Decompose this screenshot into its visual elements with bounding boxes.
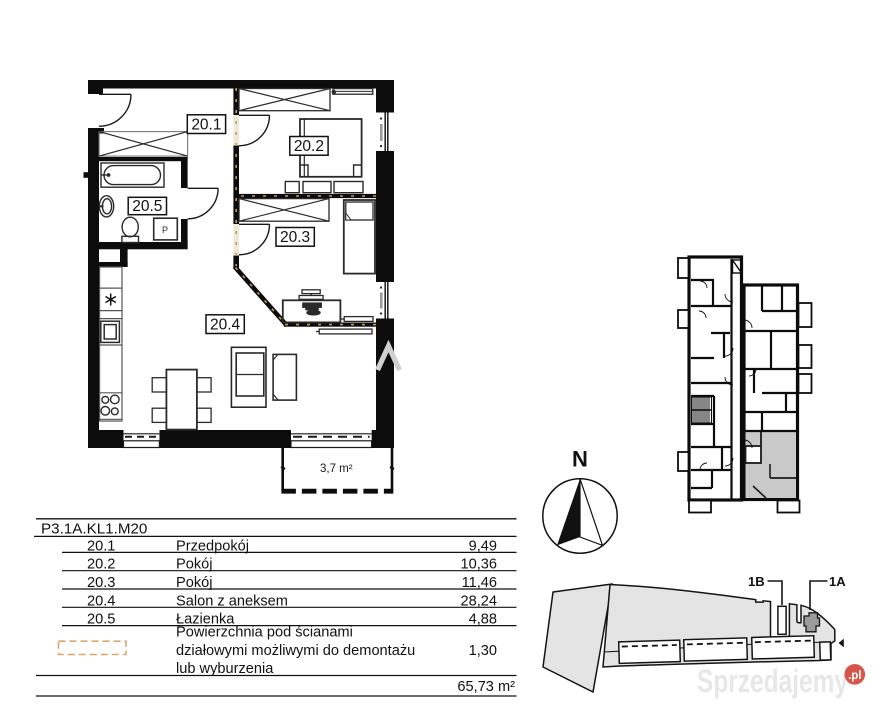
svg-text:1,30: 1,30 (469, 643, 497, 659)
svg-text:20.2: 20.2 (294, 138, 324, 155)
svg-text:działowymi możliwymi do demont: działowymi możliwymi do demontażu (176, 643, 415, 659)
svg-text:20.4: 20.4 (210, 316, 241, 333)
svg-text:Sprzedajemy: Sprzedajemy (697, 663, 848, 699)
svg-text:P: P (162, 225, 168, 235)
svg-text:1B: 1B (748, 574, 765, 589)
svg-text:65,73 m²: 65,73 m² (457, 679, 515, 695)
svg-text:.pl: .pl (848, 670, 861, 682)
svg-text:lub wyburzenia: lub wyburzenia (176, 661, 274, 677)
svg-text:P3.1A.KL1.M20: P3.1A.KL1.M20 (41, 520, 147, 537)
svg-text:1A: 1A (829, 574, 846, 589)
svg-text:20.3: 20.3 (280, 229, 310, 246)
svg-text:Powierzchnia pod ścianami: Powierzchnia pod ścianami (176, 625, 353, 641)
svg-text:20.1: 20.1 (191, 116, 221, 133)
svg-text:20.5: 20.5 (132, 198, 162, 215)
svg-text:N: N (572, 447, 588, 472)
svg-text:3,7 m²: 3,7 m² (320, 463, 353, 475)
